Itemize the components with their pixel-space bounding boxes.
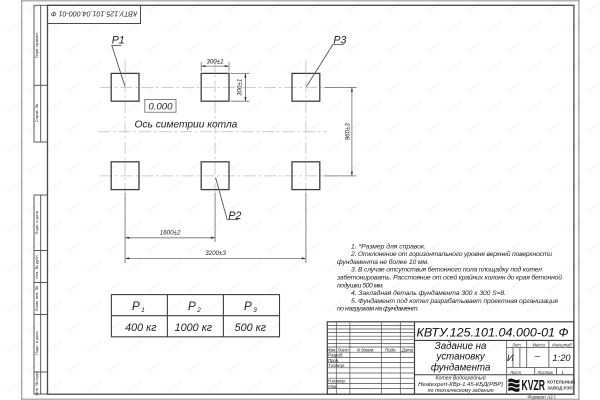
svg-text:ЗАВОД РЭП: ЗАВОД РЭП — [547, 385, 572, 390]
svg-text:фундамента не более 10 мм.: фундамента не более 10 мм. — [337, 258, 429, 266]
svg-text:3200±3: 3200±3 — [205, 250, 226, 257]
svg-text:Утв.: Утв. — [328, 384, 338, 389]
svg-text:И: И — [507, 352, 514, 363]
svg-text:400 кг: 400 кг — [125, 322, 157, 334]
svg-text:фундамента: фундамента — [431, 362, 491, 373]
svg-text:5. Фундамент под котел разраба: 5. Фундамент под котел разрабатывает про… — [351, 297, 558, 305]
svg-text:1600±2: 1600±2 — [160, 230, 181, 237]
svg-text:Р2: Р2 — [228, 210, 241, 222]
svg-text:Формат А3: Формат А3 — [527, 394, 553, 399]
svg-text:Р: Р — [244, 300, 252, 313]
svg-text:Подп. и дата: Подп. и дата — [34, 210, 39, 234]
svg-text:1: 1 — [561, 370, 563, 375]
svg-text:2: 2 — [196, 307, 201, 314]
svg-text:960±3: 960±3 — [344, 123, 351, 141]
svg-text:1. *Размер для справок.: 1. *Размер для справок. — [351, 242, 426, 250]
svg-text:установку: установку — [435, 352, 485, 363]
svg-text:300±1: 300±1 — [206, 58, 223, 65]
svg-text:Дата: Дата — [401, 347, 414, 352]
svg-text:KVZR: KVZR — [522, 378, 546, 394]
svg-text:Лит.: Лит. — [511, 342, 522, 347]
svg-text:4. Закладная деталь фундамента: 4. Закладная деталь фундамента 300 x 300… — [351, 289, 506, 297]
svg-text:300±1: 300±1 — [236, 79, 243, 96]
svg-text:2. Отклонение от горизонтально: 2. Отклонение от горизонтального уровня … — [350, 250, 552, 258]
svg-text:КОТЕЛЬНЫЙ: КОТЕЛЬНЫЙ — [547, 379, 575, 384]
svg-text:Т.контр.: Т.контр. — [328, 363, 345, 368]
svg-text:0.000: 0.000 — [148, 102, 173, 113]
svg-text:N докум.: N докум. — [357, 347, 374, 352]
svg-text:Инв. № подл.: Инв. № подл. — [34, 371, 39, 396]
svg-text:Ось симетрии котла: Ось симетрии котла — [135, 120, 238, 131]
svg-text:1000 кг: 1000 кг — [175, 322, 213, 334]
svg-text:Взам. инв. №: Взам. инв. № — [34, 286, 39, 311]
svg-text:3: 3 — [253, 307, 257, 314]
svg-text:Масштаб: Масштаб — [552, 342, 572, 347]
svg-text:КВТУ.125.101.04.000-01 Ф: КВТУ.125.101.04.000-01 Ф — [51, 9, 137, 18]
svg-text:–: – — [534, 350, 541, 361]
svg-text:3. В случае отсутствия бетонно: 3. В случае отсутствия бетонного пола пл… — [351, 266, 542, 274]
svg-text:Котел Водогрейный: Котел Водогрейный — [436, 374, 486, 381]
svg-text:подушки 500 мм.: подушки 500 мм. — [337, 281, 384, 289]
svg-text:Справ. №: Справ. № — [34, 104, 39, 122]
svg-text:1: 1 — [141, 307, 145, 314]
svg-text:Подп. и дата: Подп. и дата — [34, 331, 39, 355]
svg-text:Перв. примен.: Перв. примен. — [34, 32, 39, 59]
svg-text:Листов: Листов — [536, 370, 553, 375]
svg-text:500 кг: 500 кг — [235, 322, 267, 334]
svg-text:Р: Р — [188, 300, 196, 313]
svg-text:1:20: 1:20 — [552, 352, 571, 363]
svg-text:Лист: Лист — [509, 370, 521, 375]
svg-text:Пров.: Пров. — [328, 358, 339, 363]
svg-text:Р: Р — [132, 300, 140, 313]
svg-text:по техническому заданию: по техническому заданию — [428, 388, 494, 394]
svg-text:Задание на: Задание на — [435, 341, 487, 352]
svg-text:Масса: Масса — [533, 342, 546, 347]
svg-text:забетонировать. Расстояние от: забетонировать. Расстояние от осей крайн… — [336, 274, 562, 282]
svg-text:Р1: Р1 — [112, 34, 125, 46]
svg-text:Инв. № дубл.: Инв. № дубл. — [34, 254, 39, 279]
svg-text:КВТУ.125.101.04.000-01 Ф: КВТУ.125.101.04.000-01 Ф — [417, 326, 569, 340]
svg-text:Подп.: Подп. — [385, 347, 396, 352]
svg-text:по нагрузкам на фундамент.: по нагрузкам на фундамент. — [337, 305, 419, 313]
